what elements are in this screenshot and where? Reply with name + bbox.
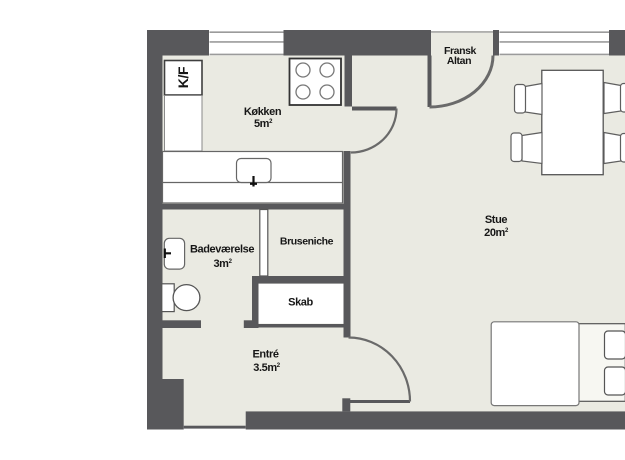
svg-text:Skab: Skab bbox=[288, 297, 313, 309]
svg-text:Køkken: Køkken bbox=[244, 106, 282, 118]
svg-text:Altan: Altan bbox=[447, 55, 471, 67]
svg-text:Bruseniche: Bruseniche bbox=[280, 236, 334, 248]
svg-text:Badeværelse: Badeværelse bbox=[190, 244, 254, 256]
svg-text:3.5m2: 3.5m2 bbox=[253, 362, 280, 374]
svg-text:Stue: Stue bbox=[485, 214, 508, 226]
svg-text:Entré: Entré bbox=[252, 349, 278, 361]
svg-text:K/F: K/F bbox=[175, 66, 191, 88]
